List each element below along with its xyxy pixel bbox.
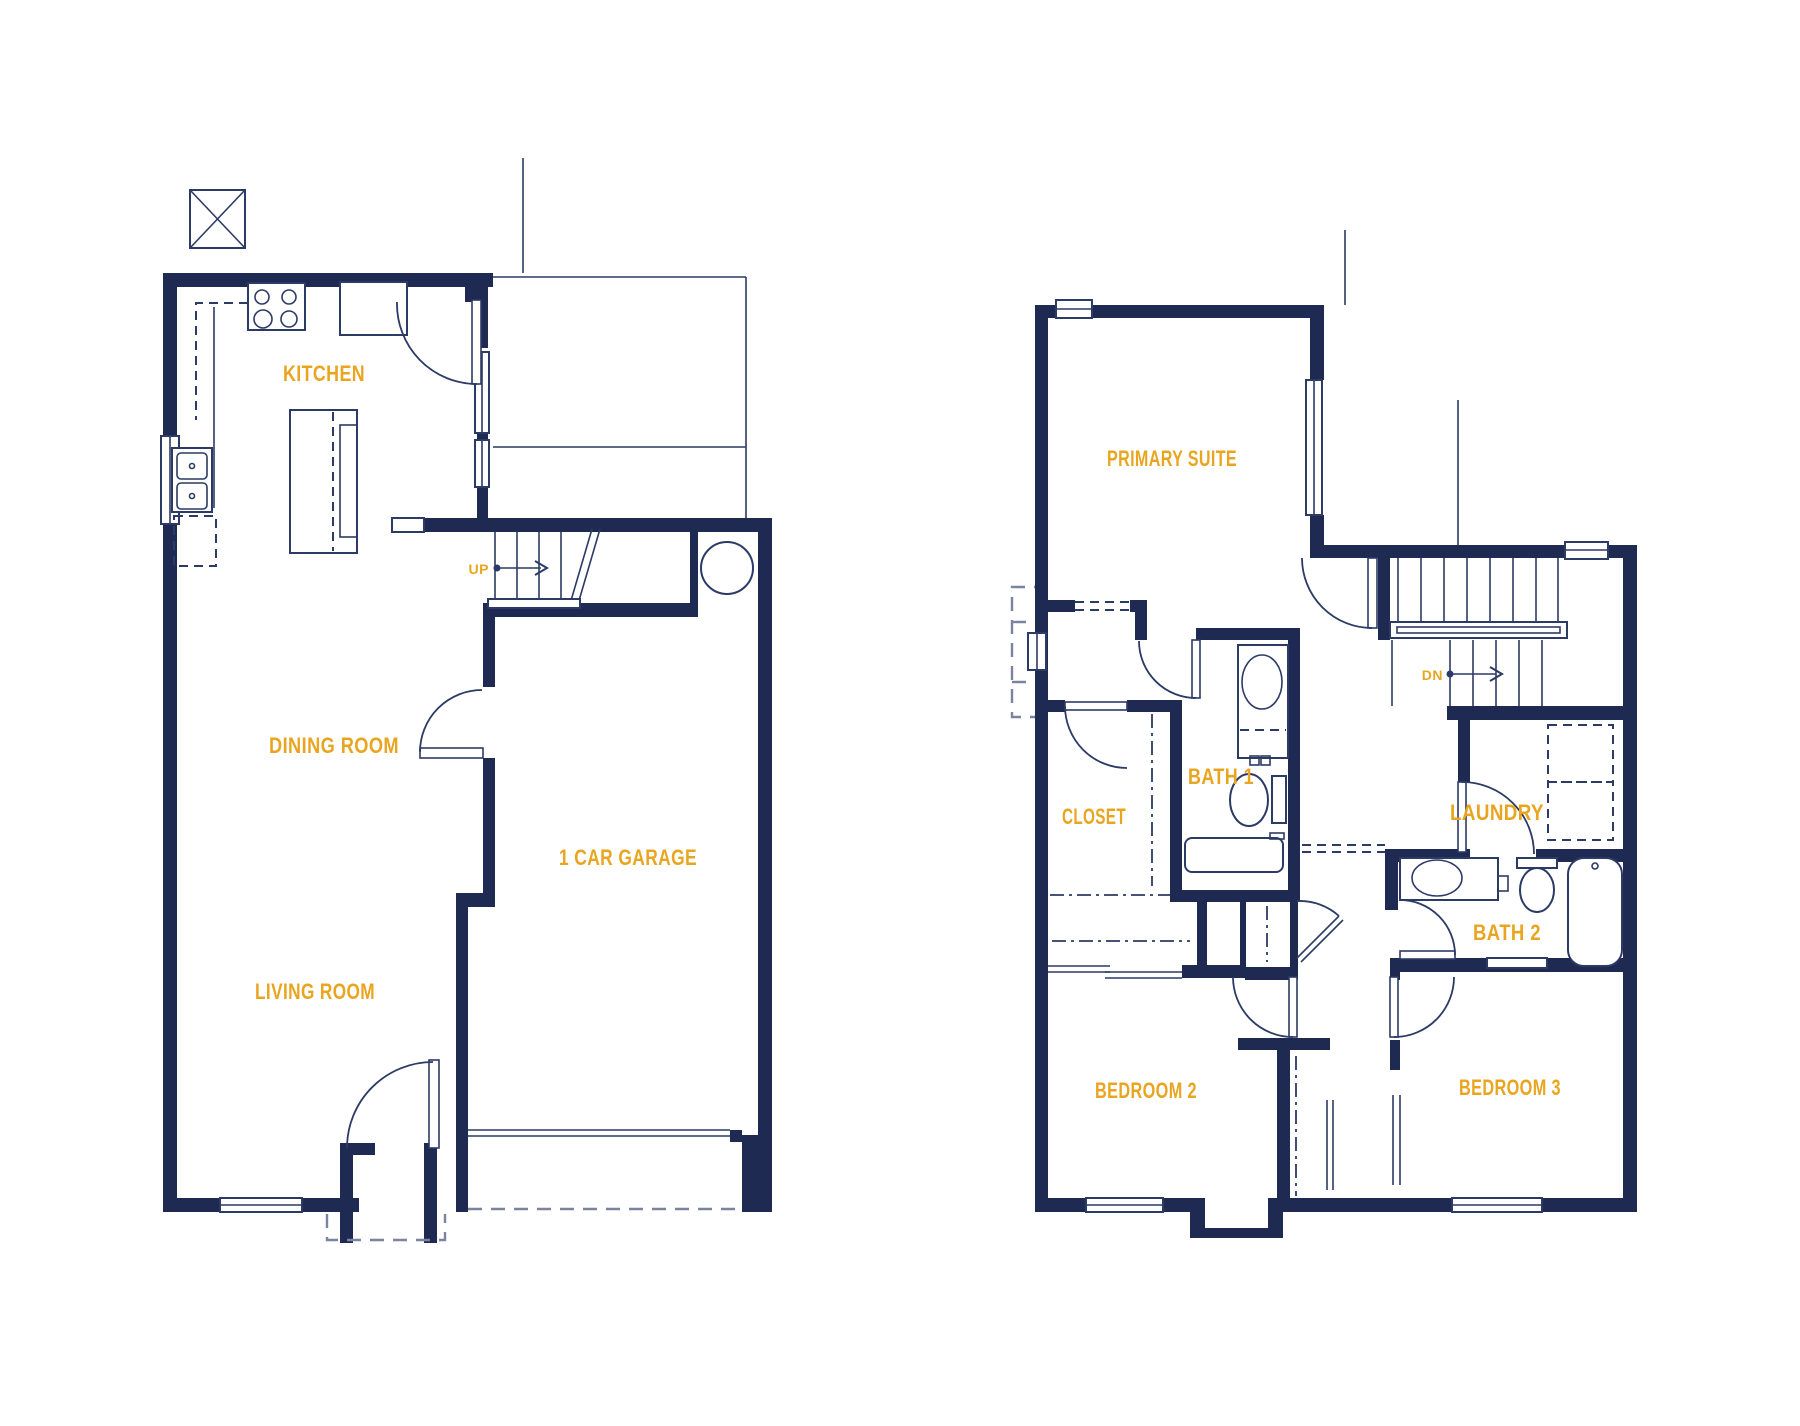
dining-room-label: DINING ROOM bbox=[269, 733, 399, 758]
bath1-shower bbox=[1238, 645, 1288, 765]
stair-railing bbox=[1390, 622, 1567, 638]
living-room-label: LIVING ROOM bbox=[255, 979, 375, 1004]
closet-door bbox=[1065, 702, 1127, 768]
kitchen-patio-door bbox=[397, 300, 481, 384]
bath1-label: BATH 1 bbox=[1188, 764, 1254, 789]
dn-label: DN bbox=[1422, 667, 1443, 683]
bedroom3-label: BEDROOM 3 bbox=[1459, 1075, 1561, 1100]
garage-label: 1 CAR GARAGE bbox=[559, 845, 697, 870]
bedroom2-label: BEDROOM 2 bbox=[1095, 1078, 1197, 1103]
garage-entry-door bbox=[420, 690, 483, 758]
primary-suite-label: PRIMARY SUITE bbox=[1107, 446, 1237, 471]
chimney-box bbox=[190, 190, 245, 248]
bath2-door bbox=[1400, 900, 1455, 959]
up-label: UP bbox=[469, 561, 489, 577]
hall-door bbox=[1297, 901, 1343, 962]
bath2-vanity bbox=[1400, 858, 1508, 900]
kitchen-sink bbox=[172, 448, 212, 512]
bedroom2-door bbox=[1233, 977, 1297, 1037]
garage-door bbox=[468, 1130, 742, 1209]
kitchen-label: KITCHEN bbox=[283, 361, 365, 386]
front-door bbox=[347, 1060, 439, 1148]
bath1-vanity bbox=[1185, 833, 1284, 872]
dishwasher bbox=[174, 516, 216, 566]
kitchen-island bbox=[290, 410, 357, 553]
bedroom3-door bbox=[1390, 977, 1454, 1037]
bathtub bbox=[1568, 858, 1622, 966]
first-floor-plan: KITCHEN DINING ROOM LIVING ROOM 1 CAR GA… bbox=[161, 158, 772, 1243]
closet-label: CLOSET bbox=[1062, 804, 1126, 829]
bath1-door bbox=[1139, 640, 1200, 698]
primary-suite-door bbox=[1302, 558, 1377, 628]
floor-plan: KITCHEN DINING ROOM LIVING ROOM 1 CAR GA… bbox=[0, 0, 1800, 1426]
floor-plan-canvas: KITCHEN DINING ROOM LIVING ROOM 1 CAR GA… bbox=[0, 0, 1800, 1426]
bath2-label: BATH 2 bbox=[1473, 920, 1541, 945]
bath2-toilet bbox=[1517, 858, 1557, 912]
laundry-label: LAUNDRY bbox=[1450, 800, 1544, 825]
second-floor-plan: PRIMARY SUITE CLOSET BATH 1 LAUNDRY BATH… bbox=[1012, 230, 1637, 1238]
washer-dryer bbox=[1548, 725, 1613, 840]
patio-outline bbox=[493, 158, 746, 518]
stove bbox=[248, 283, 305, 330]
water-heater bbox=[701, 542, 753, 594]
